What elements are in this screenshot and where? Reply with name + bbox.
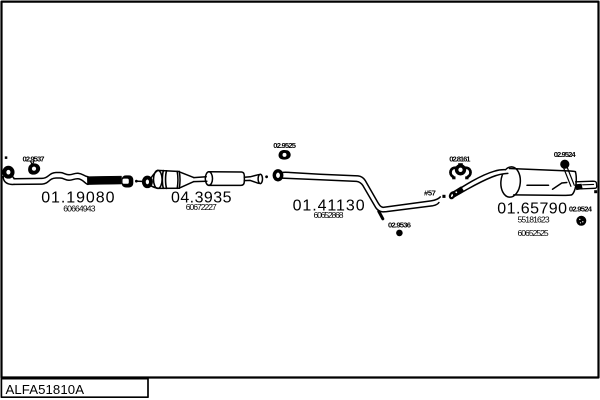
svg-text:55181623: 55181623 (518, 215, 550, 225)
svg-text:02.9524: 02.9524 (554, 150, 577, 159)
svg-text:60672227: 60672227 (186, 202, 217, 212)
svg-text:60652525: 60652525 (518, 228, 549, 238)
svg-text:02.9536: 02.9536 (388, 221, 411, 230)
svg-text:02.9524: 02.9524 (569, 205, 593, 214)
svg-text:60652868: 60652868 (314, 210, 344, 220)
svg-text:02.9537: 02.9537 (23, 154, 45, 163)
svg-text:ALFA51810A: ALFA51810A (6, 382, 85, 397)
svg-text:02.9525: 02.9525 (273, 141, 296, 150)
svg-text:60664943: 60664943 (63, 203, 96, 213)
svg-text:02.8161: 02.8161 (449, 155, 471, 164)
svg-text:#57: #57 (424, 188, 436, 197)
